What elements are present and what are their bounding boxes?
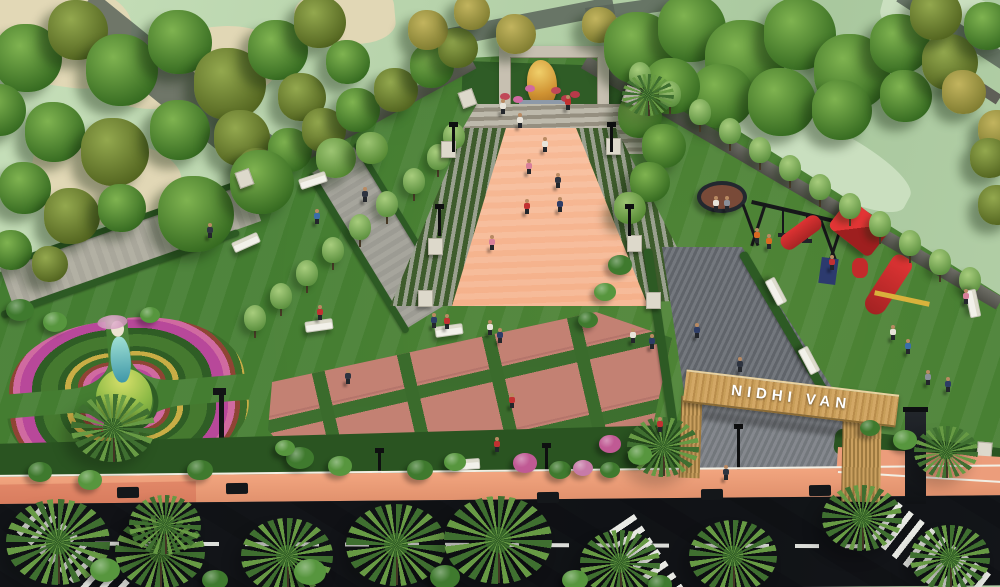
person (724, 196, 730, 211)
slim-tree (244, 305, 266, 331)
shrub (578, 312, 598, 328)
slim-tree (719, 118, 741, 144)
person (314, 209, 320, 224)
person (524, 199, 530, 214)
street-lamp-pole (628, 208, 631, 236)
person (494, 437, 500, 452)
person (694, 323, 700, 338)
person (317, 305, 323, 320)
palm-tree (71, 394, 155, 463)
slim-tree (929, 249, 951, 275)
person-legs (525, 209, 529, 214)
tree (158, 176, 234, 252)
palm-tree (622, 74, 674, 117)
flower-bed-dot (551, 87, 561, 94)
person-legs (926, 380, 930, 385)
palm-tree (580, 530, 660, 587)
person-legs (208, 233, 212, 238)
street-lamp-head (625, 204, 634, 209)
shrub (549, 461, 571, 479)
person (557, 197, 563, 212)
shrub (275, 440, 295, 456)
tree-grate (701, 489, 723, 500)
person-legs (510, 403, 514, 408)
slim-tree (689, 99, 711, 125)
tree (408, 10, 448, 50)
tree (326, 40, 370, 84)
street-lamp-head (449, 122, 458, 127)
street-lamp-head (375, 448, 384, 453)
tree (44, 188, 100, 244)
slim-tree (349, 214, 371, 240)
tree (32, 246, 68, 282)
person (754, 228, 760, 243)
shrub (562, 570, 588, 587)
street-lamp-head (607, 122, 616, 127)
planter-box (428, 238, 443, 255)
shrub (444, 453, 466, 471)
person-legs (631, 338, 635, 343)
shrub (202, 570, 228, 587)
person (890, 325, 896, 340)
shrub (78, 470, 102, 489)
shrub (43, 312, 67, 331)
tree (150, 100, 210, 160)
person-legs (738, 367, 742, 372)
shrub (6, 299, 34, 321)
trampoline (697, 181, 747, 213)
street-lamp-pole (452, 126, 455, 152)
tree (496, 14, 536, 54)
shrub (90, 558, 120, 582)
planter-box (627, 235, 642, 252)
flower-bed-dot (525, 85, 535, 92)
person (500, 99, 506, 114)
palm-tree (129, 495, 201, 554)
person-legs (318, 315, 322, 320)
tree (356, 132, 388, 164)
person-legs (346, 379, 350, 384)
tree (970, 138, 1000, 178)
shrub (594, 283, 616, 301)
shrub (573, 460, 593, 476)
tree (81, 118, 149, 186)
planter-box (418, 290, 433, 307)
flower-bed-dot (570, 91, 580, 98)
person-legs (488, 330, 492, 335)
slim-tree (322, 237, 344, 263)
shrub (140, 307, 160, 323)
shrub (628, 445, 652, 464)
palm-tree (689, 520, 777, 587)
person-legs (650, 344, 654, 349)
slim-tree (296, 260, 318, 286)
slim-tree (869, 211, 891, 237)
slim-tree (809, 174, 831, 200)
shrub (430, 565, 460, 587)
shrub (513, 453, 537, 472)
person (555, 173, 561, 188)
shrub (599, 435, 621, 453)
person (207, 223, 213, 238)
person-legs (543, 147, 547, 152)
person (509, 393, 515, 408)
shrub (648, 575, 672, 587)
garden-lamp-head (213, 388, 226, 395)
planter-box (646, 292, 661, 309)
shrub (28, 462, 52, 481)
slim-tree (749, 137, 771, 163)
person (431, 313, 437, 328)
person-legs (755, 238, 759, 243)
palm-tree (822, 485, 902, 551)
tree (964, 2, 1000, 50)
park-aerial-render: NIDHI VAN (0, 0, 1000, 587)
shrub (893, 430, 917, 449)
person (925, 370, 931, 385)
person (542, 137, 548, 152)
person (526, 159, 532, 174)
shrub (328, 456, 352, 475)
slim-tree (376, 191, 398, 217)
person-legs (658, 427, 662, 432)
street-lamp-pole (438, 208, 441, 236)
person (649, 334, 655, 349)
tree-grate (809, 485, 831, 496)
person (362, 187, 368, 202)
palm-tree (444, 496, 552, 585)
person-legs (432, 323, 436, 328)
person-legs (830, 265, 834, 270)
person (630, 328, 636, 343)
person-legs (518, 123, 522, 128)
tree (812, 80, 872, 140)
person (345, 369, 351, 384)
flower-bed-dot (513, 96, 523, 103)
person (487, 320, 493, 335)
person-legs (891, 335, 895, 340)
person-legs (964, 299, 968, 304)
person (657, 417, 663, 432)
tree-grate (117, 487, 139, 498)
shrub (294, 559, 326, 585)
person (713, 196, 719, 211)
person (829, 255, 835, 270)
person-legs (315, 219, 319, 224)
person (489, 235, 495, 250)
person (517, 113, 523, 128)
shrub (600, 462, 620, 478)
person-legs (363, 197, 367, 202)
person (945, 377, 951, 392)
tree (748, 68, 816, 136)
shrub (608, 255, 632, 274)
person (444, 314, 450, 329)
play-drum-red (852, 258, 868, 278)
person-legs (558, 207, 562, 212)
tree (25, 102, 85, 162)
palm-tree (914, 426, 978, 478)
shrub (860, 420, 880, 436)
tree (98, 184, 146, 232)
person-legs (725, 206, 729, 211)
person-legs (445, 324, 449, 329)
person-legs (767, 244, 771, 249)
person-legs (714, 206, 718, 211)
tree-grate (226, 483, 248, 494)
tree (0, 162, 51, 214)
slim-tree (899, 230, 921, 256)
slim-tree (779, 155, 801, 181)
person-legs (495, 447, 499, 452)
person-legs (906, 349, 910, 354)
person-legs (490, 245, 494, 250)
tree (880, 70, 932, 122)
street-lamp-head (435, 204, 444, 209)
street-lamp-pole (610, 126, 613, 152)
street-lamp-head (542, 443, 551, 448)
person-legs (695, 333, 699, 338)
person-legs (556, 183, 560, 188)
person-legs (527, 169, 531, 174)
planter-box (606, 138, 621, 155)
swing-rope (782, 208, 784, 234)
person-legs (724, 475, 728, 480)
person (766, 234, 772, 249)
person-legs (498, 338, 502, 343)
gate-pillar-cap (903, 407, 928, 412)
slim-tree (270, 283, 292, 309)
slim-tree (839, 193, 861, 219)
palm-tree (910, 525, 990, 587)
person (905, 339, 911, 354)
person (723, 465, 729, 480)
person-legs (501, 109, 505, 114)
tree-grate (537, 492, 559, 503)
person-legs (946, 387, 950, 392)
person (565, 95, 571, 110)
person-legs (566, 105, 570, 110)
person (963, 289, 969, 304)
person (737, 357, 743, 372)
slim-tree (403, 168, 425, 194)
tree (942, 70, 986, 114)
person (497, 328, 503, 343)
flower-bed-nw (4, 322, 111, 395)
